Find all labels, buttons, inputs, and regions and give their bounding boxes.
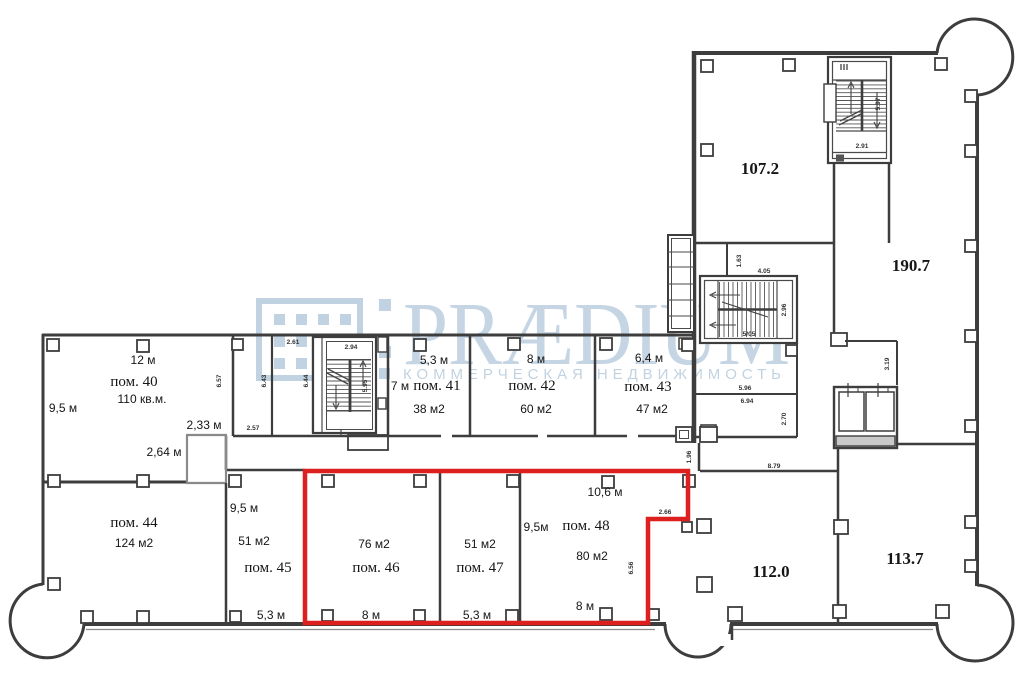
svg-text:6.43: 6.43 [261,374,268,387]
svg-text:4.05: 4.05 [758,268,771,275]
svg-text:6.56: 6.56 [628,561,635,574]
svg-text:9,5м: 9,5м [524,520,549,534]
svg-text:пом. 48: пом. 48 [562,518,609,534]
svg-text:8 м: 8 м [362,608,380,622]
svg-text:2.91: 2.91 [856,143,869,150]
svg-text:6.44: 6.44 [303,374,310,387]
svg-text:5,3 м: 5,3 м [420,353,448,367]
svg-text:пом. 43: пом. 43 [624,379,671,395]
svg-text:6.57: 6.57 [216,374,223,387]
svg-text:8 м: 8 м [576,599,594,613]
svg-text:113.7: 113.7 [886,549,924,568]
svg-text:124 м2: 124 м2 [115,536,154,550]
svg-text:12 м: 12 м [131,353,156,367]
svg-text:9,5 м: 9,5 м [230,501,258,515]
svg-text:8.79: 8.79 [768,463,781,470]
svg-text:8 м: 8 м [527,352,545,366]
svg-text:5.97: 5.97 [875,97,882,110]
svg-text:3.19: 3.19 [884,357,891,370]
svg-text:7 м: 7 м [391,379,409,393]
svg-text:76 м2: 76 м2 [358,537,390,551]
svg-text:112.0: 112.0 [752,562,789,581]
svg-text:пом. 44: пом. 44 [110,515,158,531]
svg-text:2,64 м: 2,64 м [147,445,182,459]
svg-text:110 кв.м.: 110 кв.м. [117,392,166,406]
svg-text:80 м2: 80 м2 [576,549,608,563]
svg-text:2.66: 2.66 [659,509,672,516]
svg-text:1.96: 1.96 [686,450,693,463]
svg-text:107.2: 107.2 [741,159,779,178]
svg-text:47 м2: 47 м2 [636,402,668,416]
svg-text:6,4 м: 6,4 м [635,351,663,365]
svg-text:51 м2: 51 м2 [238,534,270,548]
svg-text:пом. 45: пом. 45 [244,560,291,576]
svg-text:38 м2: 38 м2 [413,402,445,416]
svg-text:5,3 м: 5,3 м [463,608,491,622]
svg-text:пом. 42: пом. 42 [508,378,555,394]
svg-text:9,5 м: 9,5 м [49,401,77,415]
svg-text:2.70: 2.70 [781,412,788,425]
svg-text:5.96: 5.96 [739,385,752,392]
svg-text:5,3 м: 5,3 м [257,608,285,622]
svg-text:2.94: 2.94 [345,344,358,351]
svg-text:6.94: 6.94 [741,398,754,405]
svg-text:2,33 м: 2,33 м [187,418,222,432]
svg-text:51 м2: 51 м2 [464,537,496,551]
svg-text:5/05: 5/05 [743,331,756,338]
svg-text:пом. 46: пом. 46 [352,560,400,576]
svg-text:5.95: 5.95 [362,379,369,392]
svg-text:пом. 40: пом. 40 [110,374,157,390]
svg-text:пом. 41: пом. 41 [413,378,460,394]
svg-text:60 м2: 60 м2 [520,402,552,416]
svg-text:2.57: 2.57 [247,425,260,432]
svg-text:пом. 47: пом. 47 [456,560,504,576]
svg-text:2.61: 2.61 [287,339,300,346]
svg-text:10,6 м: 10,6 м [588,485,623,499]
svg-text:2.96: 2.96 [781,303,788,316]
svg-text:190.7: 190.7 [892,256,931,275]
svg-text:1.63: 1.63 [736,254,743,267]
